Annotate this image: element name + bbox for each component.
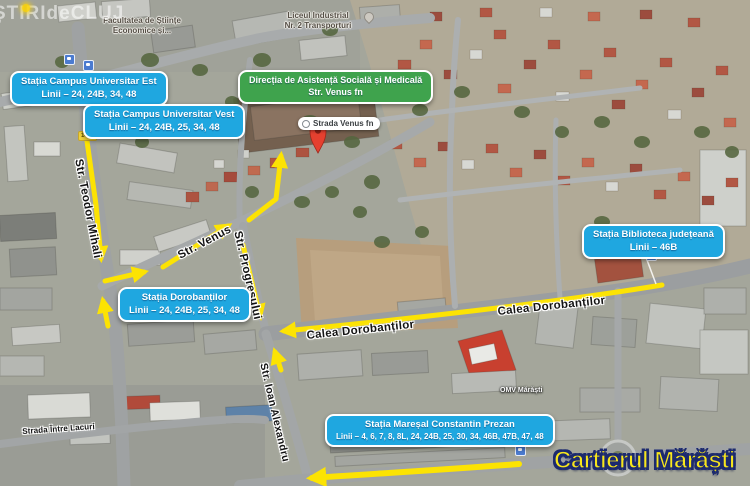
place-dot-icon xyxy=(302,120,310,128)
station-name: Stația Mareșal Constantin Prezan xyxy=(336,419,544,432)
station-lines: Linii – 24, 24B, 34, 48 xyxy=(21,89,157,102)
map-canvas: Str. Teodor Mihali Str. Venus Str. Progr… xyxy=(0,0,750,486)
route-arrow-bottom xyxy=(312,464,519,478)
destination-address: Str. Venus fn xyxy=(249,87,422,99)
route-arrow-ioan-alexandru xyxy=(275,352,281,370)
station-name: Stația Campus Universitar Vest xyxy=(94,109,234,122)
station-name: Stația Biblioteca județeană xyxy=(593,229,714,242)
destination-box: Direcția de Asistență Socială și Medical… xyxy=(238,70,433,104)
venus-fn-marker-pill: Strada Venus fn xyxy=(298,117,380,130)
district-title: Cartierul Mărăști xyxy=(554,447,735,475)
station-name: Stația Campus Universitar Est xyxy=(21,76,157,89)
station-box-prezan: Stația Mareșal Constantin Prezan Linii –… xyxy=(325,414,555,447)
watermark: ȘTIRIdeCLUJ xyxy=(0,3,124,25)
destination-name: Direcția de Asistență Socială și Medical… xyxy=(249,75,422,87)
station-box-campus-vest: Stația Campus Universitar Vest Linii – 2… xyxy=(83,104,245,139)
bus-stop-icon xyxy=(83,60,94,71)
station-lines: Linii – 24, 24B, 25, 34, 48 xyxy=(129,305,240,318)
route-arrow-branch-to-venus xyxy=(105,272,144,281)
sun-icon xyxy=(22,4,30,12)
station-lines: Linii – 46B xyxy=(593,242,714,255)
route-arrow-teodor-mihali-north xyxy=(103,301,108,326)
station-box-campus-est: Stația Campus Universitar Est Linii – 24… xyxy=(10,71,168,106)
marker-label: Strada Venus fn xyxy=(313,119,373,128)
route-arrow-dorobantilor xyxy=(284,285,662,331)
station-box-biblioteca: Stația Biblioteca județeană Linii – 46B xyxy=(582,224,725,259)
station-box-dorobantilor: Stația Dorobanților Linii – 24, 24B, 25,… xyxy=(118,287,251,322)
station-lines: Linii – 4, 6, 7, 8, 8L, 24, 24B, 25, 30,… xyxy=(336,432,544,443)
place-label-liceul: Liceul Industrial Nr. 2 Transporturi xyxy=(274,11,362,30)
station-lines: Linii – 24, 24B, 25, 34, 48 xyxy=(94,122,234,135)
route-arrow-to-venus-fn xyxy=(249,156,281,220)
place-label-omv: OMV Mărăști xyxy=(500,387,542,395)
bus-stop-icon xyxy=(64,54,75,65)
station-name: Stația Dorobanților xyxy=(129,292,240,305)
